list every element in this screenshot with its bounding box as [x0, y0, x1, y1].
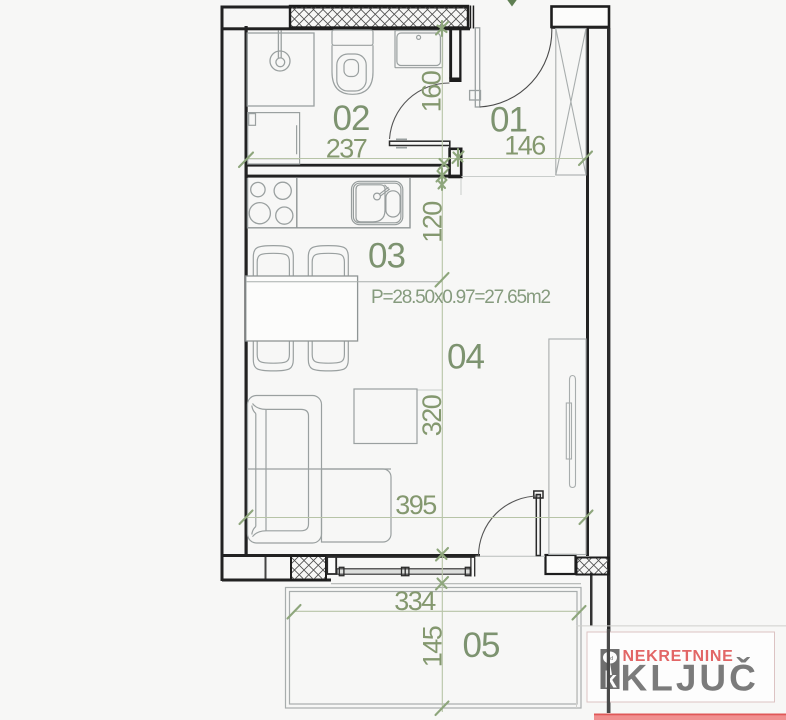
svg-text:k: k: [604, 667, 617, 693]
svg-text:395: 395: [395, 490, 436, 520]
svg-text:05: 05: [463, 626, 500, 665]
svg-text:02: 02: [333, 99, 370, 138]
svg-text:237: 237: [326, 134, 367, 164]
svg-text:120: 120: [418, 202, 448, 243]
svg-text:146: 146: [504, 131, 545, 161]
svg-text:145: 145: [418, 626, 448, 667]
svg-text:03: 03: [368, 237, 405, 276]
svg-text:P=28.50x0.97=27.65m2: P=28.50x0.97=27.65m2: [371, 287, 550, 308]
svg-text:160: 160: [417, 71, 447, 112]
svg-text:KLJUČ: KLJUČ: [621, 657, 759, 699]
svg-text:334: 334: [394, 586, 436, 616]
svg-text:320: 320: [417, 395, 447, 436]
svg-text:04: 04: [447, 338, 484, 377]
